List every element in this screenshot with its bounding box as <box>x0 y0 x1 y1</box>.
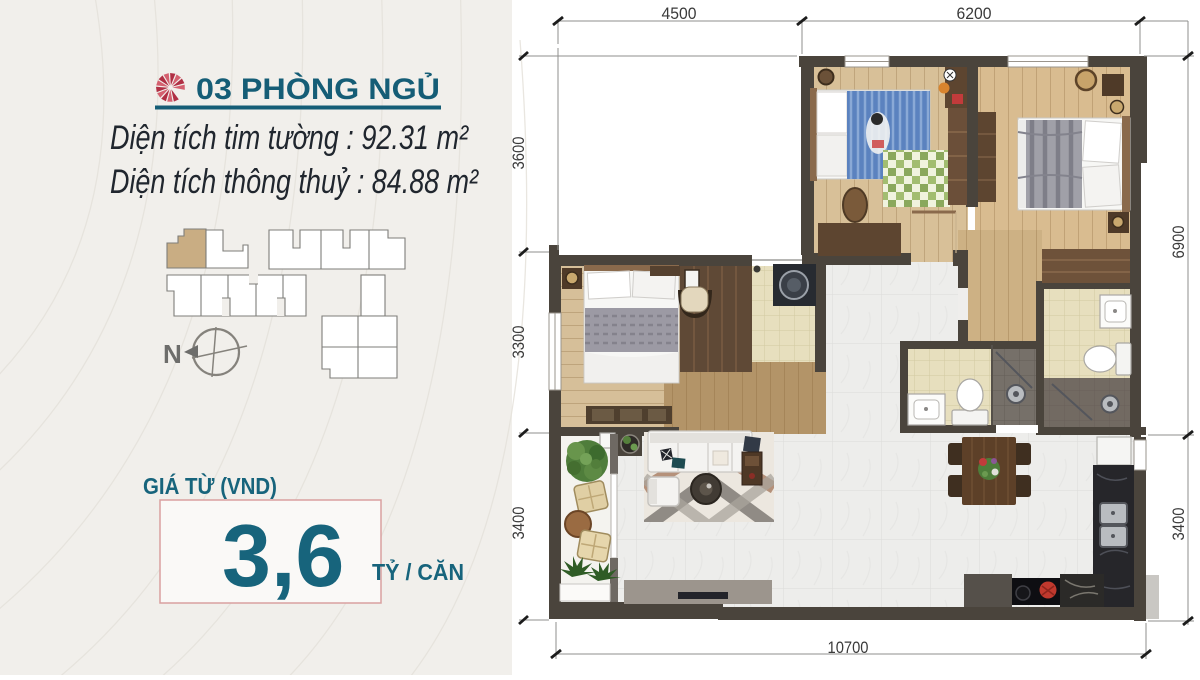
svg-text:Diện tích tim tường : 92.31 m²: Diện tích tim tường : 92.31 m² <box>110 119 469 157</box>
svg-text:10700: 10700 <box>828 638 869 657</box>
svg-text:3600: 3600 <box>509 137 528 170</box>
svg-text:GIÁ TỪ (VND): GIÁ TỪ (VND) <box>143 472 277 499</box>
svg-text:N: N <box>163 339 182 369</box>
svg-text:3400: 3400 <box>509 507 528 540</box>
svg-text:3,6: 3,6 <box>222 506 344 605</box>
svg-text:Diện tích thông thuỷ : 84.88 m: Diện tích thông thuỷ : 84.88 m² <box>110 163 479 201</box>
svg-text:3300: 3300 <box>509 326 528 359</box>
svg-text:03 PHÒNG NGỦ: 03 PHÒNG NGỦ <box>196 72 440 106</box>
svg-text:4500: 4500 <box>662 4 697 23</box>
svg-text:6900: 6900 <box>1169 226 1188 259</box>
svg-text:6200: 6200 <box>957 4 992 23</box>
svg-text:TỶ / CĂN: TỶ / CĂN <box>372 557 464 585</box>
svg-text:3400: 3400 <box>1169 508 1188 541</box>
